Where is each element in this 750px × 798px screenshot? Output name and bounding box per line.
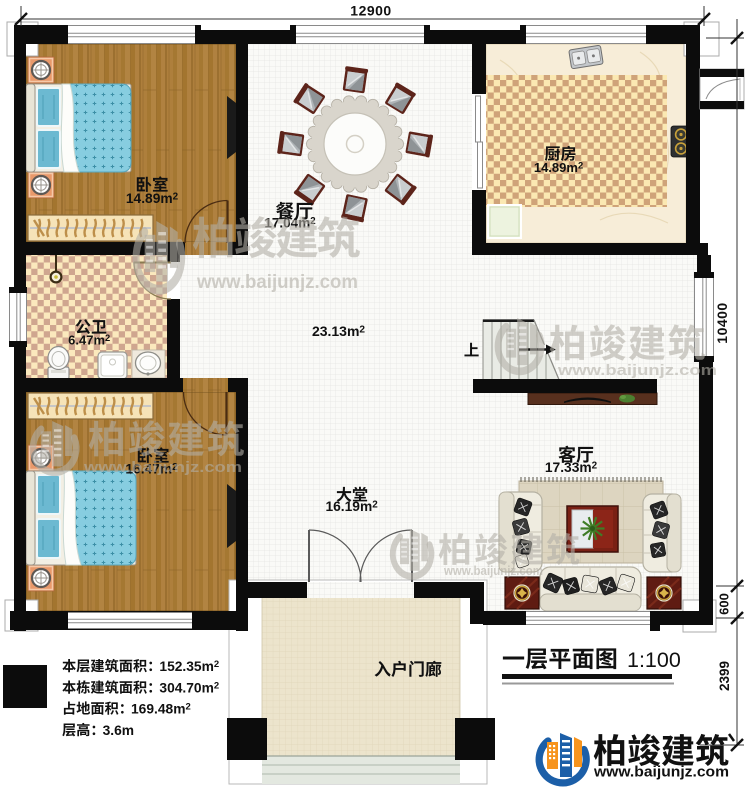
svg-text:16.19m2: 16.19m2	[325, 499, 378, 514]
svg-text:152.35m2: 152.35m2	[159, 659, 219, 674]
svg-text:www.baijunjz.com: www.baijunjz.com	[443, 564, 543, 578]
svg-text:1:100: 1:100	[627, 648, 681, 672]
svg-text:www.baijunjz.com: www.baijunjz.com	[557, 362, 717, 379]
svg-text:6.47m2: 6.47m2	[68, 332, 110, 348]
svg-text:2399: 2399	[717, 661, 732, 691]
svg-text:169.48m2: 169.48m2	[131, 702, 191, 717]
svg-text:14.89m2: 14.89m2	[126, 191, 179, 206]
svg-text:12900: 12900	[350, 3, 391, 19]
svg-text:10400: 10400	[714, 302, 730, 343]
svg-text:www.baijunjz.com: www.baijunjz.com	[196, 272, 358, 293]
svg-text:600: 600	[717, 593, 732, 615]
svg-text:304.70m2: 304.70m2	[159, 681, 219, 696]
svg-text:3.6m: 3.6m	[103, 723, 134, 738]
svg-text:www.baijunjz.com: www.baijunjz.com	[83, 459, 242, 476]
svg-text:23.13m2: 23.13m2	[312, 323, 365, 339]
svg-text:14.89m2: 14.89m2	[534, 160, 583, 176]
svg-text:www.baijunjz.com: www.baijunjz.com	[593, 764, 729, 781]
svg-text:17.33m2: 17.33m2	[545, 460, 598, 475]
